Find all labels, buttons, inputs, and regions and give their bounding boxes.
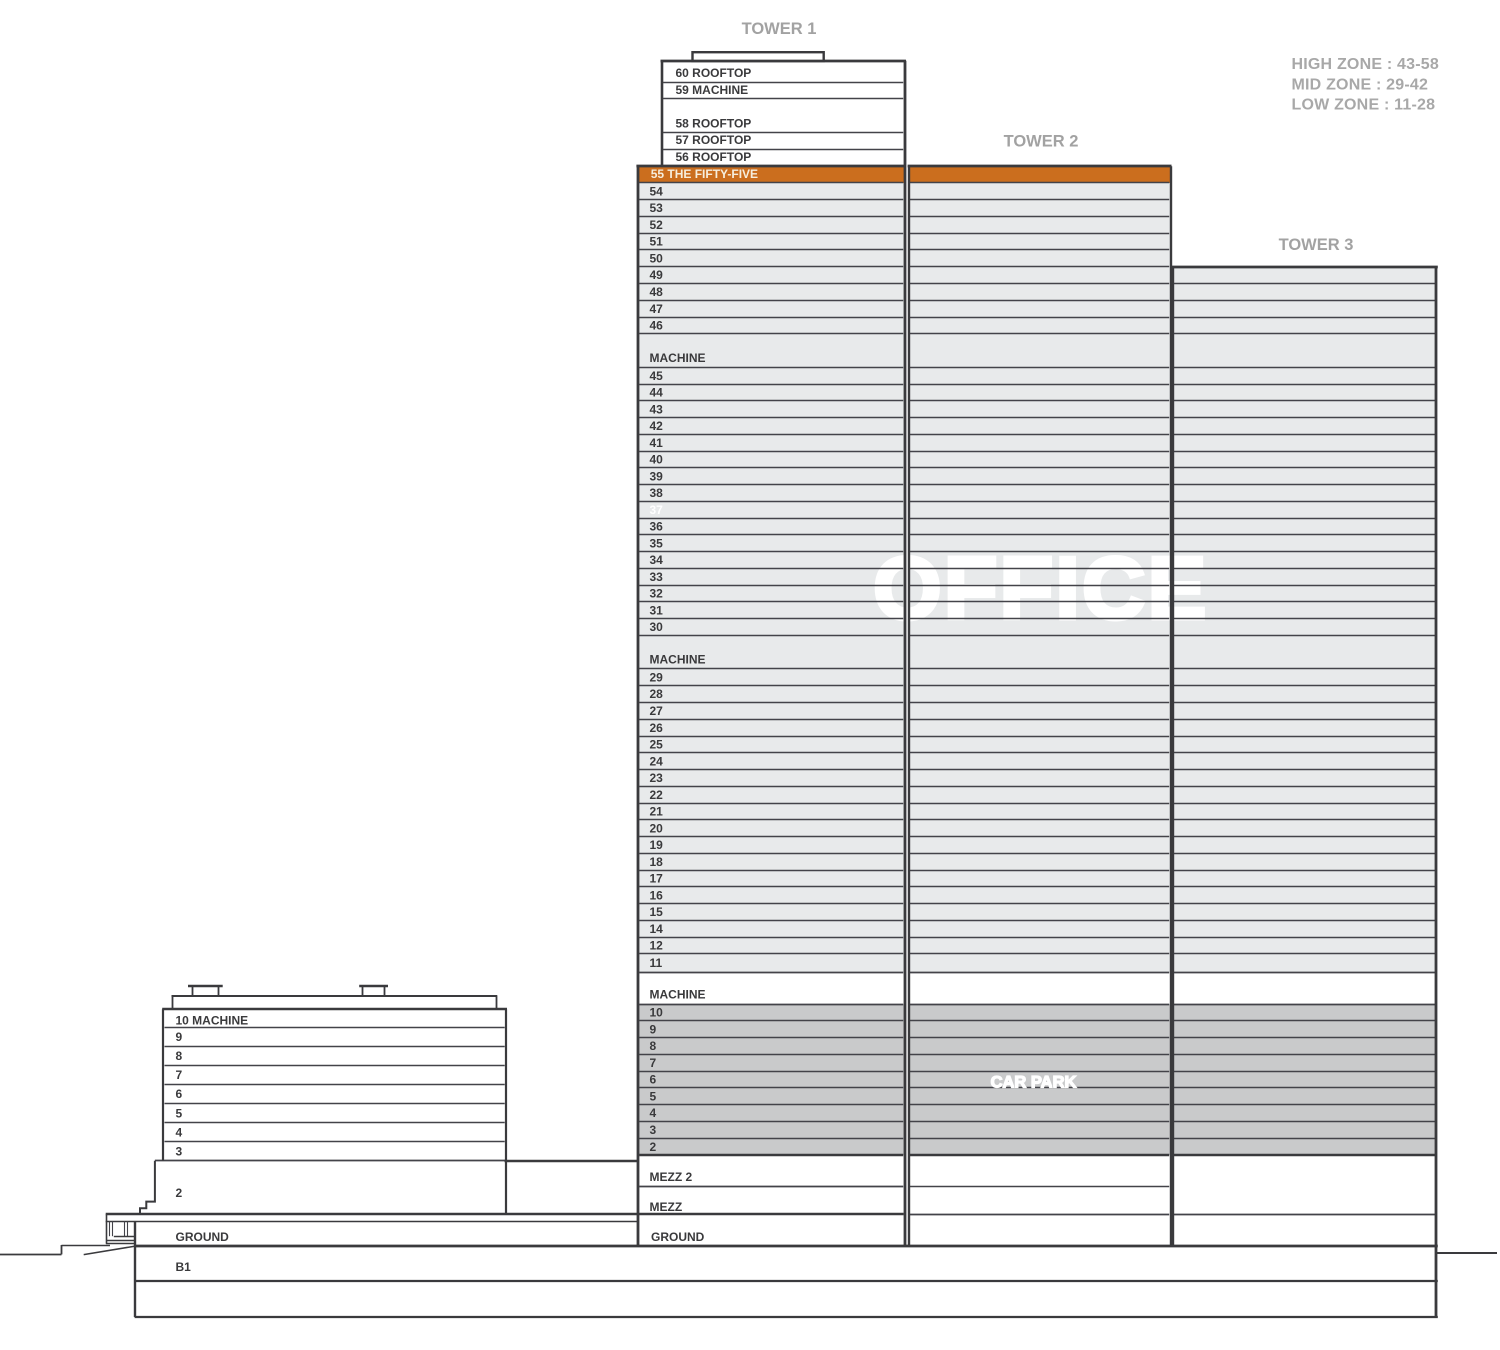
- svg-text:3: 3: [176, 1144, 183, 1158]
- svg-text:26: 26: [650, 721, 664, 735]
- svg-text:35: 35: [650, 536, 664, 550]
- svg-text:MEZZ: MEZZ: [650, 1200, 683, 1214]
- svg-text:9: 9: [176, 1030, 183, 1044]
- svg-text:2: 2: [176, 1186, 183, 1200]
- svg-text:14: 14: [650, 922, 664, 936]
- svg-text:16: 16: [650, 888, 664, 902]
- svg-text:18: 18: [650, 855, 664, 869]
- svg-text:4: 4: [650, 1106, 657, 1120]
- svg-text:6: 6: [176, 1087, 183, 1101]
- svg-text:21: 21: [650, 805, 664, 819]
- svg-text:45: 45: [650, 369, 664, 383]
- svg-text:40: 40: [650, 453, 664, 467]
- svg-text:5: 5: [650, 1090, 657, 1104]
- svg-text:TOWER 1: TOWER 1: [742, 20, 817, 38]
- svg-text:51: 51: [650, 235, 664, 249]
- svg-text:37: 37: [650, 503, 664, 517]
- svg-text:36: 36: [650, 520, 664, 534]
- svg-text:20: 20: [650, 821, 664, 835]
- svg-text:42: 42: [650, 419, 664, 433]
- svg-text:24: 24: [650, 754, 664, 768]
- svg-text:TOWER 2: TOWER 2: [1004, 132, 1079, 150]
- svg-text:8: 8: [650, 1039, 657, 1053]
- svg-text:56 ROOFTOP: 56 ROOFTOP: [676, 150, 752, 164]
- svg-text:48: 48: [650, 285, 664, 299]
- svg-text:52: 52: [650, 218, 664, 232]
- svg-text:41: 41: [650, 436, 664, 450]
- svg-text:32: 32: [650, 587, 664, 601]
- svg-text:60 ROOFTOP: 60 ROOFTOP: [676, 66, 752, 80]
- svg-text:57 ROOFTOP: 57 ROOFTOP: [676, 133, 752, 147]
- svg-text:10: 10: [650, 1006, 664, 1020]
- svg-text:27: 27: [650, 704, 664, 718]
- svg-text:MACHINE: MACHINE: [650, 653, 706, 667]
- svg-text:34: 34: [650, 553, 664, 567]
- svg-text:MEZZ 2: MEZZ 2: [650, 1170, 693, 1184]
- svg-text:39: 39: [650, 469, 664, 483]
- svg-text:9: 9: [650, 1022, 657, 1036]
- svg-text:15: 15: [650, 905, 664, 919]
- svg-text:B1: B1: [176, 1260, 192, 1274]
- svg-text:59 MACHINE: 59 MACHINE: [676, 83, 749, 97]
- svg-text:7: 7: [650, 1056, 657, 1070]
- svg-text:33: 33: [650, 570, 664, 584]
- svg-text:MACHINE: MACHINE: [650, 351, 706, 365]
- svg-text:28: 28: [650, 687, 664, 701]
- svg-text:50: 50: [650, 252, 664, 266]
- svg-text:4: 4: [176, 1125, 183, 1139]
- svg-text:HIGH ZONE : 43-58: HIGH ZONE : 43-58: [1292, 56, 1439, 73]
- svg-text:MID ZONE : 29-42: MID ZONE : 29-42: [1292, 76, 1429, 93]
- svg-text:GROUND: GROUND: [176, 1230, 230, 1244]
- svg-text:44: 44: [650, 386, 664, 400]
- svg-text:53: 53: [650, 201, 664, 215]
- svg-text:30: 30: [650, 620, 664, 634]
- svg-text:38: 38: [650, 486, 664, 500]
- svg-text:46: 46: [650, 319, 664, 333]
- svg-text:3: 3: [650, 1123, 657, 1137]
- svg-text:LOW ZONE : 11-28: LOW ZONE : 11-28: [1292, 96, 1436, 113]
- svg-text:29: 29: [650, 671, 664, 685]
- svg-text:10 MACHINE: 10 MACHINE: [176, 1014, 249, 1028]
- svg-text:7: 7: [176, 1068, 183, 1082]
- svg-text:MACHINE: MACHINE: [650, 988, 706, 1002]
- svg-text:55 THE FIFTY-FIVE: 55 THE FIFTY-FIVE: [651, 167, 758, 181]
- svg-text:OFFICE: OFFICE: [873, 539, 1208, 638]
- svg-text:58 ROOFTOP: 58 ROOFTOP: [676, 116, 752, 130]
- svg-text:22: 22: [650, 788, 664, 802]
- svg-text:GROUND: GROUND: [651, 1230, 705, 1244]
- svg-text:17: 17: [650, 872, 664, 886]
- svg-text:49: 49: [650, 268, 664, 282]
- svg-text:25: 25: [650, 738, 664, 752]
- svg-text:54: 54: [650, 184, 664, 198]
- svg-text:11: 11: [650, 956, 663, 970]
- svg-text:CAR PARK: CAR PARK: [991, 1074, 1077, 1092]
- svg-text:43: 43: [650, 402, 664, 416]
- svg-text:23: 23: [650, 771, 664, 785]
- svg-text:2: 2: [650, 1140, 657, 1154]
- svg-text:6: 6: [650, 1073, 657, 1087]
- svg-text:TOWER 3: TOWER 3: [1279, 236, 1354, 254]
- svg-text:47: 47: [650, 302, 664, 316]
- svg-text:8: 8: [176, 1049, 183, 1063]
- svg-text:12: 12: [650, 939, 664, 953]
- svg-text:31: 31: [650, 603, 664, 617]
- svg-text:19: 19: [650, 838, 664, 852]
- svg-text:5: 5: [176, 1106, 183, 1120]
